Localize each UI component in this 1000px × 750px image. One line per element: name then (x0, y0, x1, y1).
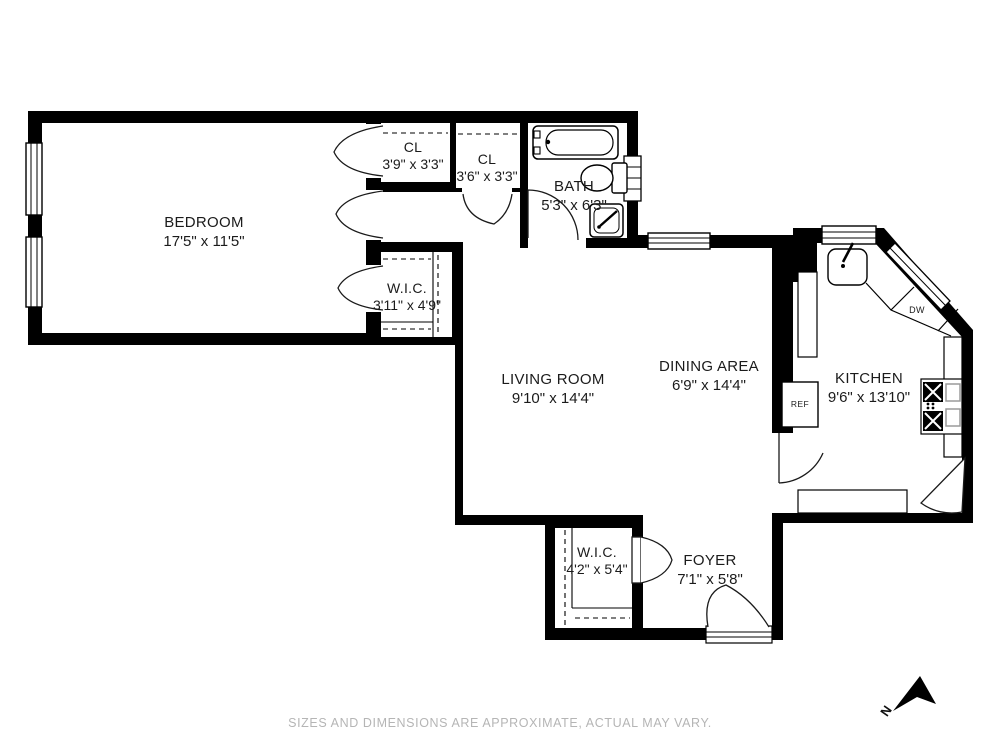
doorway-bath (528, 236, 586, 250)
kitchen-window (822, 226, 876, 244)
bathtub-icon (533, 126, 618, 159)
bedroom-name: BEDROOM (163, 213, 244, 232)
wic2-label: W.I.C. 4'2" x 5'4" (566, 544, 627, 578)
compass-north-arrow (893, 676, 936, 711)
closet2-label: CL 3'6" x 3'3" (456, 151, 517, 185)
kitchen-name: KITCHEN (828, 369, 910, 388)
closet2-dims: 3'6" x 3'3" (456, 168, 517, 185)
wic2-floor (555, 528, 632, 628)
wic1-label: W.I.C. 3'11" x 4'9" (373, 280, 441, 314)
bath-label: BATH 5'3" x 6'3" (541, 177, 607, 215)
bedroom-window-2 (26, 237, 42, 307)
dining-area-dims: 6'9" x 14'4" (659, 376, 759, 395)
closet2-name: CL (456, 151, 517, 168)
closet1-dims: 3'9" x 3'3" (382, 156, 443, 173)
foyer-dims: 7'1" x 5'8" (677, 570, 743, 589)
dining-area-label: DINING AREA 6'9" x 14'4" (659, 357, 759, 395)
bath-dims: 5'3" x 6'3" (541, 196, 607, 215)
stove-icon (921, 379, 962, 434)
bedroom-dims: 17'5" x 11'5" (163, 232, 244, 251)
closet1-label: CL 3'9" x 3'3" (382, 139, 443, 173)
wic2-dims: 4'2" x 5'4" (566, 561, 627, 578)
dining-window (648, 233, 710, 249)
foyer-name: FOYER (677, 551, 743, 570)
disclaimer-text: SIZES AND DIMENSIONS ARE APPROXIMATE, AC… (288, 716, 712, 730)
wic1-dims: 3'11" x 4'9" (373, 297, 441, 314)
wic2-name: W.I.C. (566, 544, 627, 561)
living-room-label: LIVING ROOM 9'10" x 14'4" (501, 370, 604, 408)
bedroom-label: BEDROOM 17'5" x 11'5" (163, 213, 244, 251)
kitchen-counter-bottom (798, 490, 907, 513)
bath-name: BATH (541, 177, 607, 196)
foyer-label: FOYER 7'1" x 5'8" (677, 551, 743, 589)
living-room-dims: 9'10" x 14'4" (501, 389, 604, 408)
refrigerator-label: REF (791, 399, 809, 409)
wic1-name: W.I.C. (373, 280, 441, 297)
bedroom-window-1 (26, 143, 42, 215)
dining-area-name: DINING AREA (659, 357, 759, 376)
closet1-name: CL (382, 139, 443, 156)
entry-threshold (706, 626, 772, 643)
kitchen-sink-icon (828, 243, 867, 285)
dishwasher-label: DW (909, 305, 925, 315)
living-room-name: LIVING ROOM (501, 370, 604, 389)
floor-plan-canvas: BEDROOM 17'5" x 11'5" CL 3'9" x 3'3" CL … (0, 0, 1000, 750)
doorway-kitchen (770, 433, 795, 513)
wic2-door-leaf (632, 537, 641, 583)
kitchen-label: KITCHEN 9'6" x 13'10" (828, 369, 910, 407)
kitchen-counter-left (798, 272, 817, 357)
kitchen-dims: 9'6" x 13'10" (828, 388, 910, 407)
